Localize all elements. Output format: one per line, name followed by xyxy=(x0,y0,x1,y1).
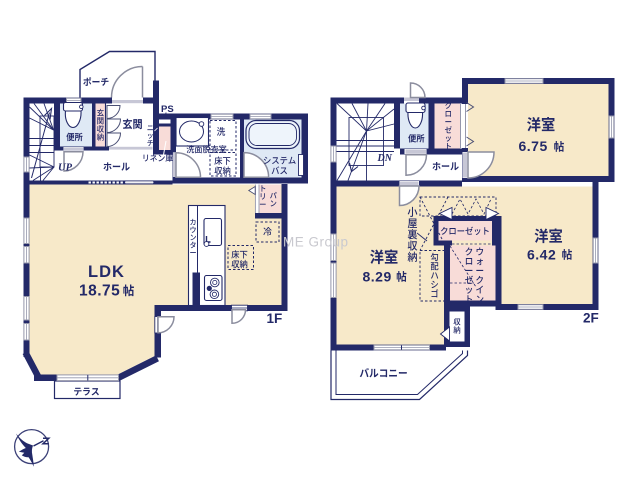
svg-text:1F: 1F xyxy=(267,311,283,326)
svg-text:LDK: LDK xyxy=(88,263,125,281)
svg-text:2F: 2F xyxy=(583,311,599,326)
svg-text:PS: PS xyxy=(161,104,174,115)
svg-text:8.29: 8.29 xyxy=(363,269,392,285)
svg-text:ME Group: ME Group xyxy=(283,235,349,250)
svg-text:6.75: 6.75 xyxy=(519,138,548,154)
svg-text:UP: UP xyxy=(58,163,73,174)
svg-text:DN: DN xyxy=(377,153,393,164)
svg-text:18.75: 18.75 xyxy=(79,283,120,300)
svg-text:6.42: 6.42 xyxy=(527,247,556,263)
